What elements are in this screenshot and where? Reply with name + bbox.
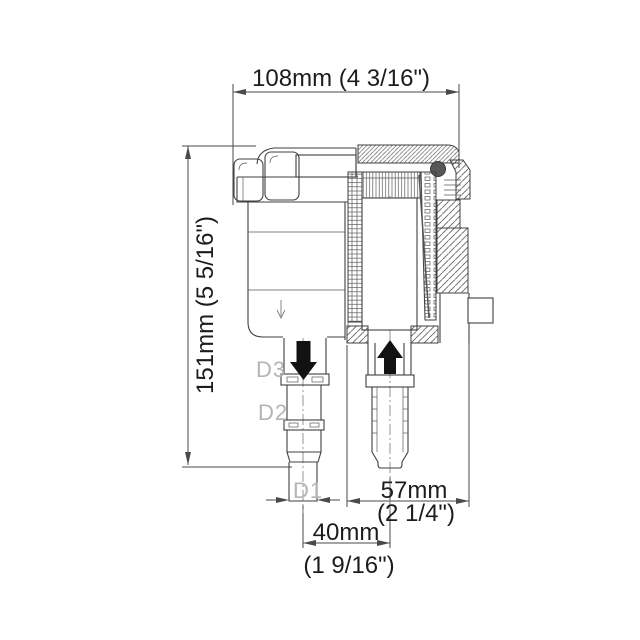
handle-knob-right <box>265 152 299 200</box>
outlet-standpipe <box>362 198 417 330</box>
port-label-d1: D1 <box>293 478 323 503</box>
molded-flow-mark <box>277 300 285 318</box>
filter-basket-section <box>348 172 436 330</box>
strainer-body <box>248 202 348 340</box>
bracket-flange <box>437 228 468 293</box>
drawing-canvas: 108mm (4 3/16") 151mm (5 5/16") 57mm (2 … <box>0 0 640 640</box>
mesh-wall-left <box>348 172 362 322</box>
port-label-d3: D3 <box>256 357 286 382</box>
port-label-d2: D2 <box>258 400 288 425</box>
inlet-step <box>287 430 321 462</box>
dim-overall-width: 108mm (4 3/16") <box>252 65 430 92</box>
cap-section-right <box>450 160 470 199</box>
dim-inlet-offset-mm: 40mm <box>313 519 380 546</box>
inlet-d2-ring <box>284 420 324 430</box>
handle-top-loop <box>257 148 356 164</box>
cap-knurled-band <box>358 145 459 163</box>
body-outline <box>248 202 345 337</box>
bracket-foot <box>440 293 469 343</box>
mounting-bracket <box>437 200 493 343</box>
dim-overall-height: 151mm (5 5/16") <box>192 216 219 394</box>
strainer-technical-drawing: 108mm (4 3/16") 151mm (5 5/16") 57mm (2 … <box>0 0 640 640</box>
handle-knob-left <box>234 159 263 201</box>
inlet-d2-tube <box>287 385 321 420</box>
handle-bar <box>296 155 356 177</box>
bracket-tab <box>468 298 493 323</box>
dim-outlet-offset-in: (2 1/4") <box>377 500 455 527</box>
mesh-top-band <box>362 172 420 198</box>
dim-inlet-offset-in: (1 9/16") <box>303 552 394 579</box>
outlet-flow-arrow-up <box>377 340 403 374</box>
bracket-neck <box>437 200 460 228</box>
